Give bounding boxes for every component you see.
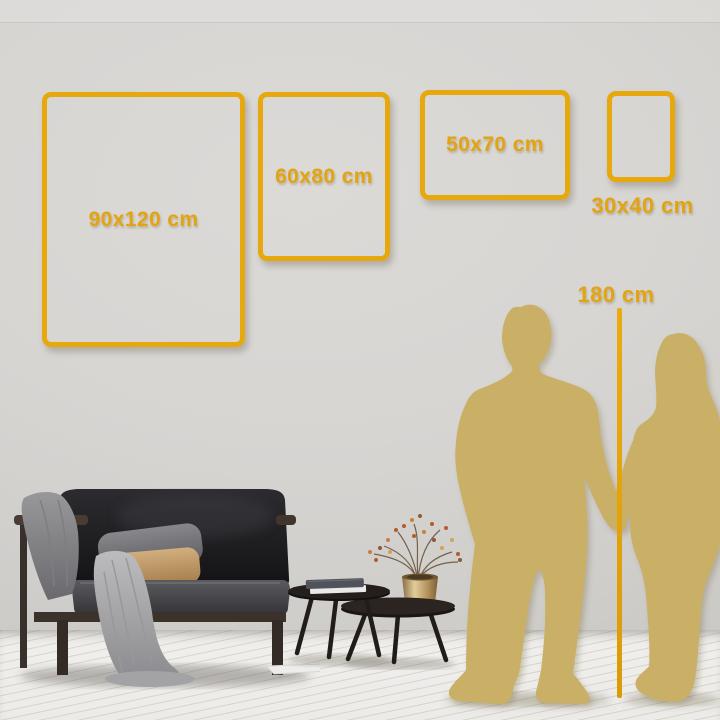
- sofa-rear-post: [20, 520, 27, 668]
- couple-silhouette: [430, 295, 720, 715]
- height-reference-label: 180 cm: [546, 282, 686, 308]
- table-left-legs: [297, 597, 379, 657]
- poster-size-guide-scene: 90x120 cm 60x80 cm 50x70 cm 30x40 cm: [0, 0, 720, 720]
- sofa-bottom-rail: [34, 612, 286, 622]
- size-frame-60x80: 60x80 cm: [258, 92, 390, 261]
- size-frame-30x40: [607, 91, 675, 182]
- height-reference-line: [617, 308, 622, 698]
- ceiling-shadow-band: [0, 0, 720, 23]
- woman-silhouette: [613, 335, 720, 700]
- frame-size-label: 50x70 cm: [446, 133, 544, 157]
- man-silhouette: [451, 307, 625, 702]
- sofa-illustration: [0, 480, 320, 720]
- frame-size-label: 30x40 cm: [572, 193, 713, 219]
- blanket-floor-pool: [105, 671, 195, 687]
- size-frame-90x120: 90x120 cm: [42, 92, 245, 347]
- size-frame-50x70: 50x70 cm: [420, 90, 570, 200]
- frame-size-label: 60x80 cm: [275, 165, 373, 189]
- sofa-leg-left: [57, 620, 68, 675]
- frame-size-label: 90x120 cm: [89, 208, 199, 232]
